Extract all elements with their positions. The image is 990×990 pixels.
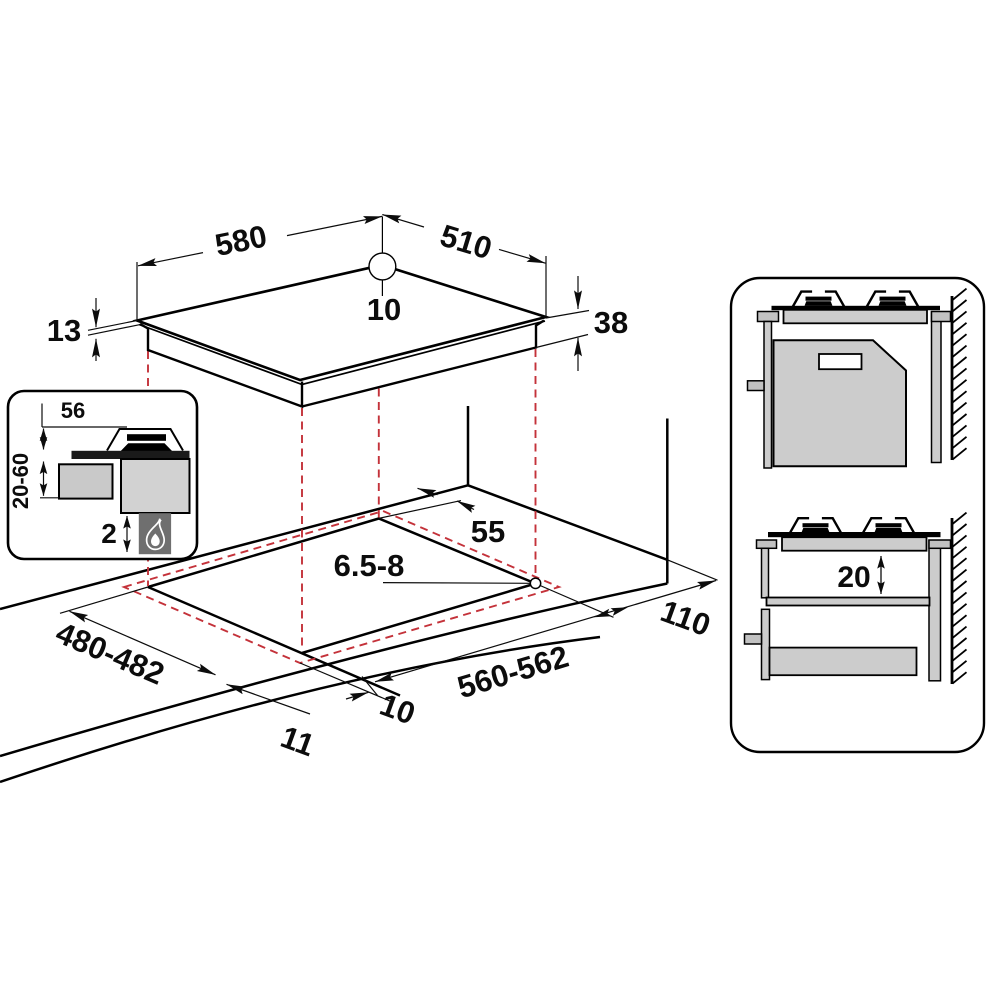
svg-text:56: 56 [61, 398, 85, 423]
svg-text:13: 13 [47, 313, 81, 348]
svg-text:10: 10 [367, 292, 401, 327]
svg-text:2: 2 [101, 518, 117, 549]
svg-text:20-60: 20-60 [8, 453, 33, 509]
svg-text:38: 38 [594, 305, 628, 340]
svg-text:55: 55 [471, 514, 505, 549]
svg-text:6.5-8: 6.5-8 [334, 548, 405, 583]
svg-text:20: 20 [837, 561, 870, 594]
